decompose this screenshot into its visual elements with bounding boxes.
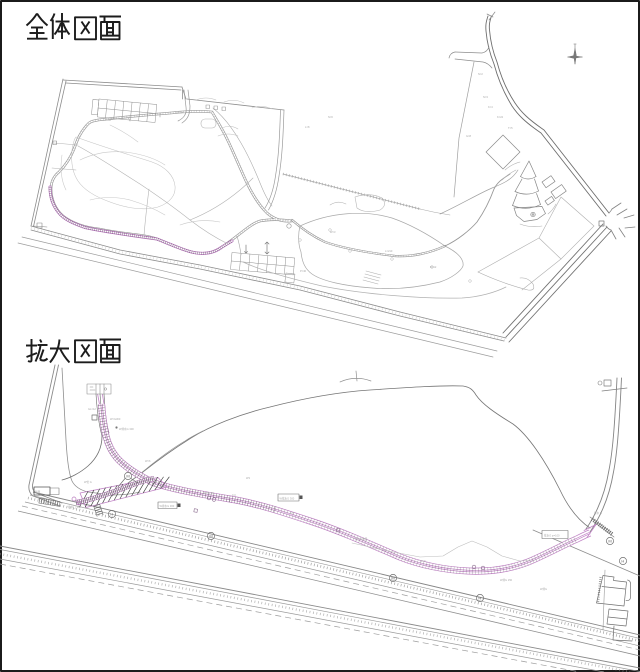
svg-text:K=4: K=4 xyxy=(488,105,493,109)
svg-text:W=6: W=6 xyxy=(145,459,151,463)
svg-text:H: H xyxy=(621,559,624,564)
svg-text:W排水G 300: W排水G 300 xyxy=(119,427,134,431)
svg-text:W=G300: W=G300 xyxy=(110,417,121,421)
svg-text:H: H xyxy=(478,596,481,601)
svg-text:M: M xyxy=(608,539,611,544)
svg-text:GL=12: GL=12 xyxy=(88,407,96,411)
svg-text:W=9: W=9 xyxy=(420,559,426,563)
svg-text:N=3: N=3 xyxy=(483,95,488,99)
svg-text:W排G: W排G xyxy=(540,587,547,591)
svg-text:M: M xyxy=(209,534,212,539)
svg-text:0.3: 0.3 xyxy=(232,493,236,497)
svg-text:W計G 86: W計G 86 xyxy=(203,491,214,495)
svg-text:M: M xyxy=(391,576,394,581)
svg-text:K=22: K=22 xyxy=(497,115,504,119)
svg-text:L=8: L=8 xyxy=(305,125,310,129)
svg-text:排水 G: 排水 G xyxy=(594,511,602,515)
svg-text:P=40: P=40 xyxy=(300,269,307,273)
svg-text:G=8: G=8 xyxy=(466,134,472,138)
svg-text:排水G数量: 排水G数量 xyxy=(355,537,368,541)
svg-text:管理: 管理 xyxy=(35,490,41,494)
svg-text:N=6: N=6 xyxy=(328,115,333,119)
svg-text:R=12: R=12 xyxy=(430,265,437,269)
svg-text:W=3: W=3 xyxy=(330,230,336,234)
svg-text:排水口 300: 排水口 300 xyxy=(68,505,81,509)
svg-text:排水G φ=100: 排水G φ=100 xyxy=(544,534,560,538)
svg-text:W排水G 300: W排水G 300 xyxy=(280,497,295,501)
svg-text:W排水G 300: W排水G 300 xyxy=(160,504,175,508)
svg-text:T=5: T=5 xyxy=(508,126,513,130)
svg-text:P=60: P=60 xyxy=(105,118,112,122)
svg-text:M: M xyxy=(126,474,129,479)
svg-text:0.5: 0.5 xyxy=(290,511,294,515)
svg-text:H: H xyxy=(110,512,113,517)
svg-text:L=210: L=210 xyxy=(385,249,393,253)
svg-text:W排G 150: W排G 150 xyxy=(500,578,513,582)
svg-text:N=2: N=2 xyxy=(478,72,483,76)
svg-text:W位 G: W位 G xyxy=(84,480,92,484)
svg-text:W3: W3 xyxy=(246,476,250,480)
